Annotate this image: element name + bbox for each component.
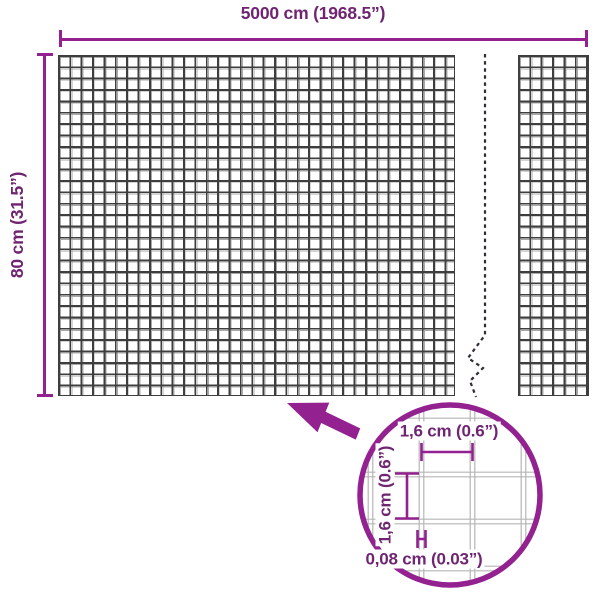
detail-pointer-arrow-icon: [287, 403, 360, 440]
mesh-opening-width-label: 1,6 cm (0.6”): [398, 422, 501, 441]
mesh-opening-height-label: 1,6 cm (0.6”): [376, 444, 395, 547]
mesh-fence-dimension-diagram: 5000 cm (1968.5”) 80 cm (31.5”): [0, 0, 600, 600]
wire-thickness-label: 0,08 cm (0.03”): [363, 550, 484, 569]
break-dashed-line: [468, 54, 485, 397]
diagram-overlay: [0, 0, 600, 600]
